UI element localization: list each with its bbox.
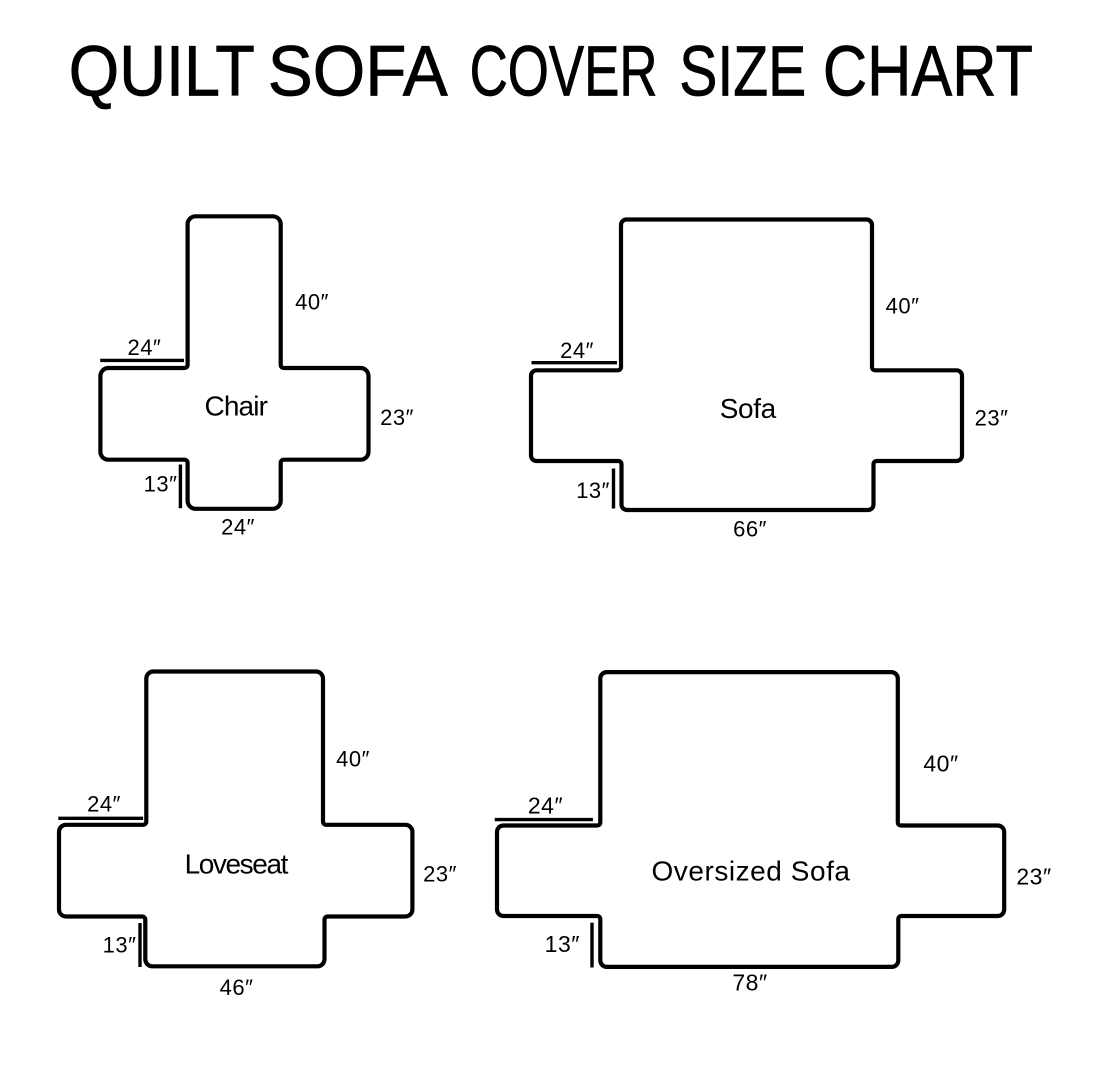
svg-text:46″: 46″ [220, 975, 254, 1000]
svg-text:40″: 40″ [336, 747, 370, 772]
svg-text:24″: 24″ [87, 792, 121, 817]
svg-text:78″: 78″ [732, 970, 767, 996]
svg-text:COVER: COVER [470, 33, 658, 112]
svg-text:Chair: Chair [204, 391, 267, 422]
svg-text:23″: 23″ [975, 406, 1009, 431]
svg-text:Oversized Sofa: Oversized Sofa [651, 856, 850, 887]
svg-text:13″: 13″ [144, 472, 178, 497]
svg-text:CHART: CHART [823, 33, 1033, 112]
svg-text:24″: 24″ [221, 515, 255, 540]
svg-text:QUILT: QUILT [69, 33, 255, 112]
svg-text:24″: 24″ [528, 793, 563, 819]
svg-text:Loveseat: Loveseat [185, 849, 289, 880]
svg-text:13″: 13″ [576, 478, 610, 503]
svg-text:23″: 23″ [1016, 864, 1051, 890]
svg-text:66″: 66″ [733, 517, 767, 542]
svg-text:40″: 40″ [295, 290, 329, 315]
svg-text:23″: 23″ [380, 405, 414, 430]
svg-text:SOFA: SOFA [268, 33, 449, 112]
svg-text:24″: 24″ [560, 338, 594, 363]
svg-text:23″: 23″ [423, 862, 457, 887]
svg-text:13″: 13″ [545, 931, 580, 957]
svg-text:13″: 13″ [103, 933, 137, 958]
svg-text:Sofa: Sofa [720, 393, 777, 424]
svg-text:24″: 24″ [128, 335, 162, 360]
svg-text:40″: 40″ [886, 294, 920, 319]
svg-text:40″: 40″ [923, 751, 958, 777]
svg-text:SIZE: SIZE [679, 33, 806, 112]
